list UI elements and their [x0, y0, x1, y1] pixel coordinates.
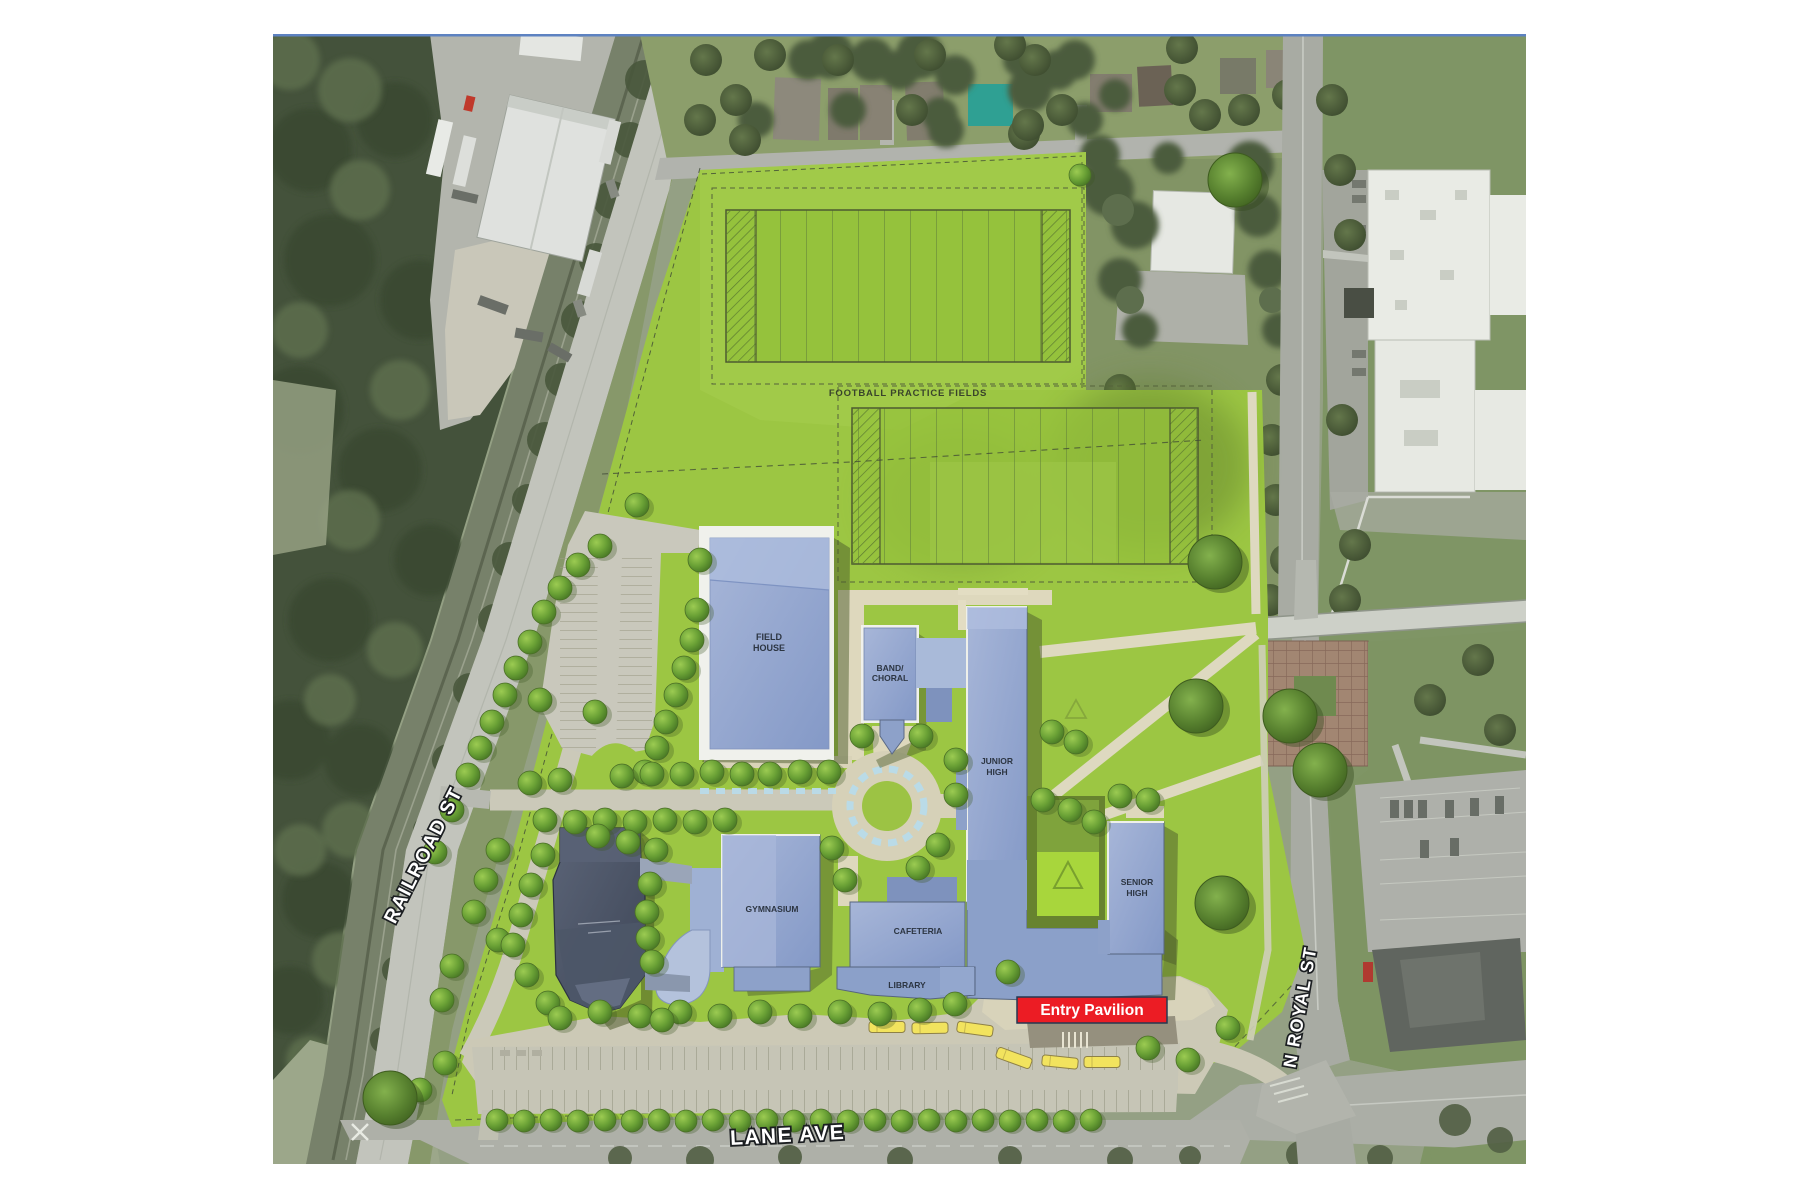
svg-text:CHORAL: CHORAL — [872, 673, 908, 683]
svg-text:FOOTBALL PRACTICE FIELDS: FOOTBALL PRACTICE FIELDS — [829, 388, 987, 399]
svg-text:HIGH: HIGH — [986, 767, 1007, 777]
svg-text:JUNIOR: JUNIOR — [981, 756, 1013, 766]
svg-text:LIBRARY: LIBRARY — [888, 980, 926, 990]
svg-text:BAND/: BAND/ — [877, 663, 905, 673]
svg-text:CAFETERIA: CAFETERIA — [894, 926, 943, 936]
svg-text:Entry Pavilion: Entry Pavilion — [1040, 1002, 1143, 1019]
svg-text:HOUSE: HOUSE — [753, 643, 785, 653]
svg-text:SENIOR: SENIOR — [1121, 877, 1154, 887]
svg-text:HIGH: HIGH — [1126, 888, 1147, 898]
svg-text:FIELD: FIELD — [756, 632, 782, 642]
svg-text:GYMNASIUM: GYMNASIUM — [746, 904, 799, 914]
